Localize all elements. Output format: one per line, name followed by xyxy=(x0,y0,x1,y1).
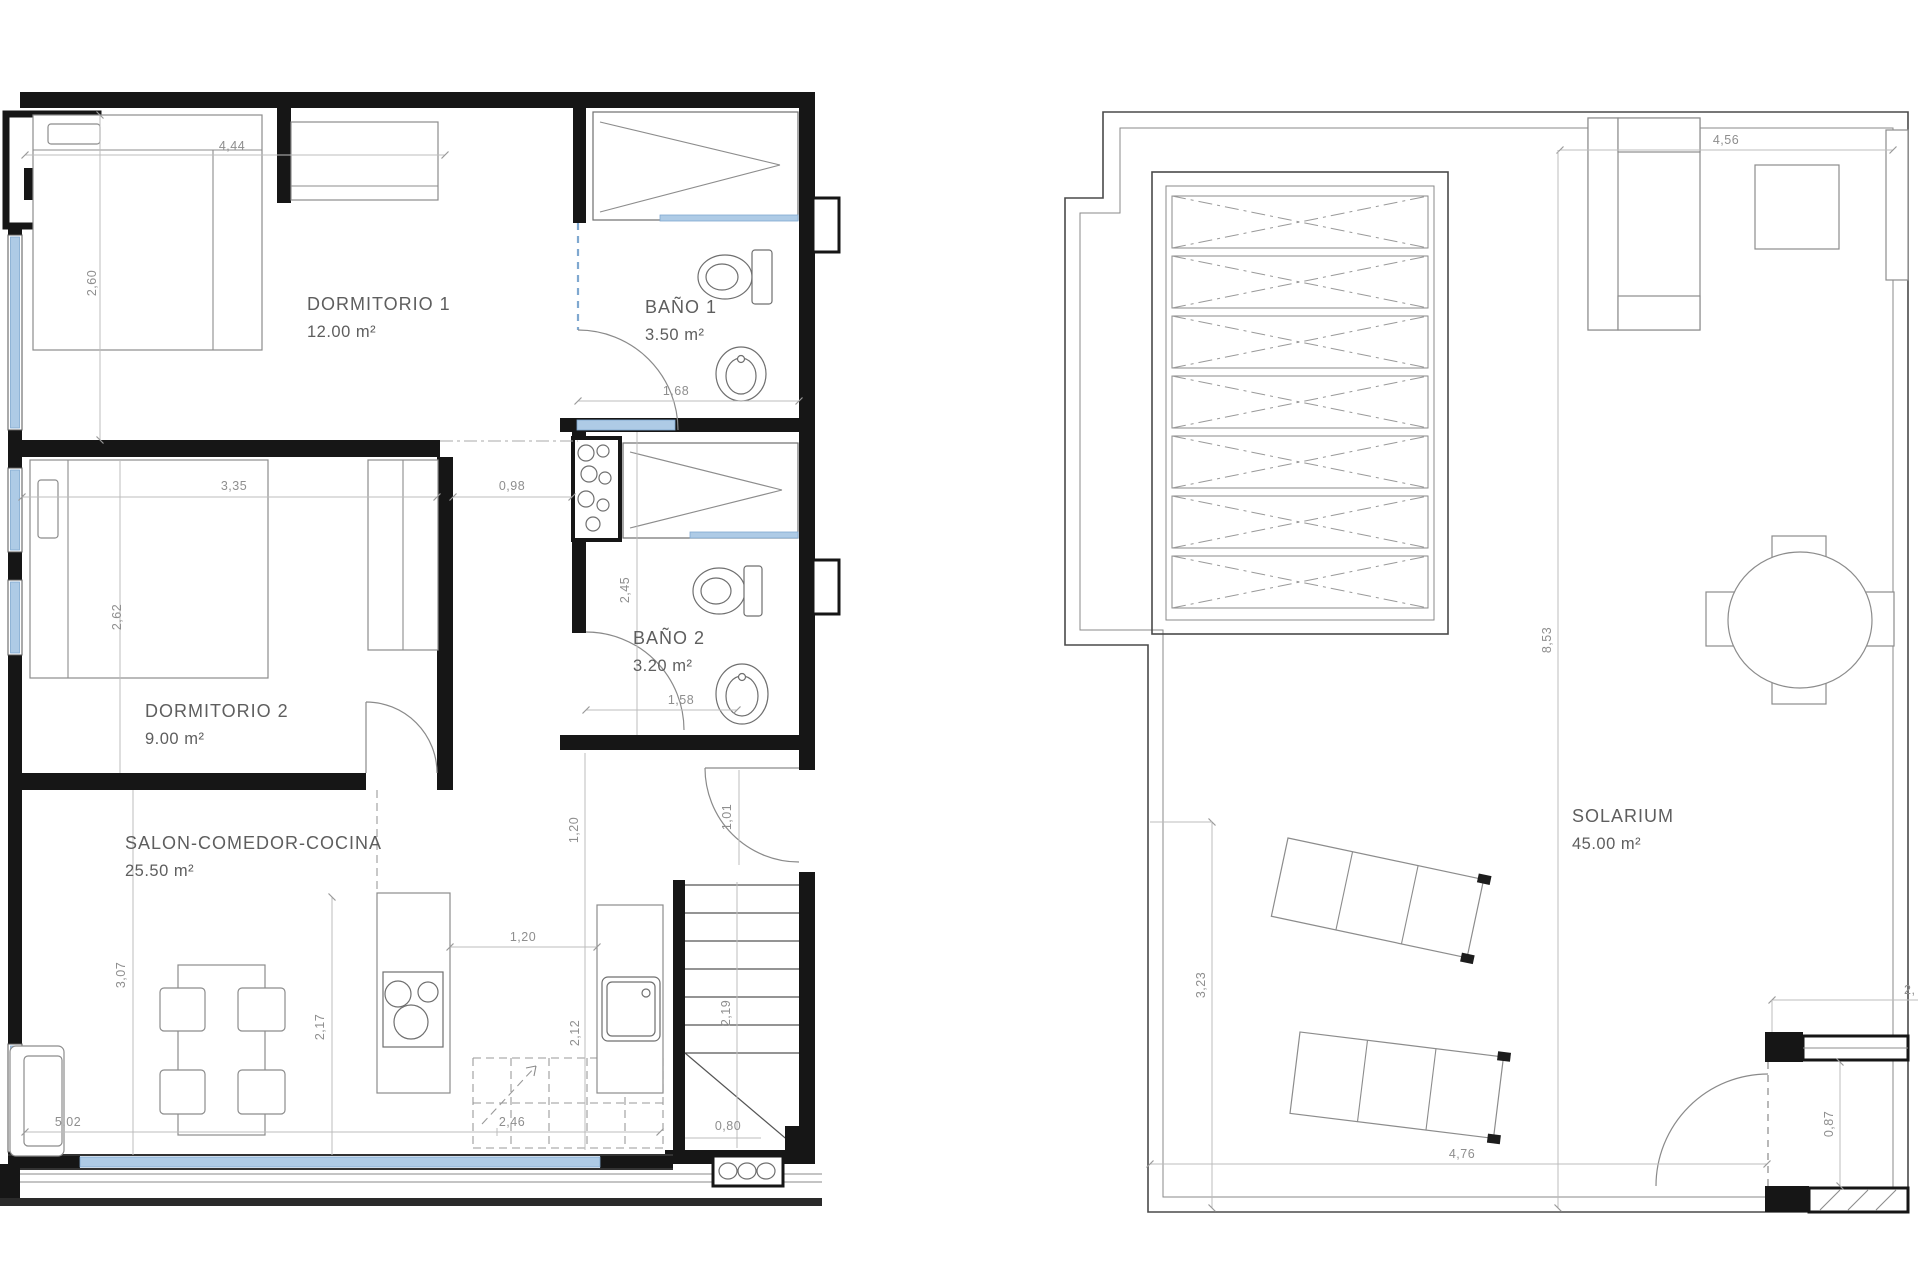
right-floor-plan: 4,56 8,53 3,23 4,76 0,87 2, SOLARIUM 45.… xyxy=(1065,112,1918,1212)
dim-bano1-width: 1,68 xyxy=(663,384,689,398)
dim-salon-height: 3,07 xyxy=(114,962,128,988)
kitchen-counters xyxy=(377,893,663,1093)
pergola-slats xyxy=(1172,196,1428,608)
dim-stair-run: 2,19 xyxy=(719,1000,733,1026)
dim-dorm1-height: 2,60 xyxy=(85,270,99,296)
dim-stair-width: 0,80 xyxy=(715,1119,741,1133)
pergola-structure xyxy=(1152,172,1448,634)
room-area-solarium: 45.00 m² xyxy=(1572,835,1641,853)
room-area-dormitorio-2: 9.00 m² xyxy=(145,730,204,748)
room-label-solarium: SOLARIUM xyxy=(1572,806,1674,826)
dim-solarium-top-width: 4,56 xyxy=(1713,133,1739,147)
bano1-sink xyxy=(716,347,766,401)
dim-entry-depth: 1,20 xyxy=(567,817,581,843)
dim-bano2-height: 2,45 xyxy=(618,577,632,603)
right-niche-1 xyxy=(813,198,839,252)
side-table xyxy=(1755,165,1839,249)
dining-table xyxy=(160,965,285,1135)
bano2-sink xyxy=(716,664,768,724)
dim-solarium-bottom-width: 4,76 xyxy=(1449,1147,1475,1161)
dim-entry-door: 1,01 xyxy=(720,804,734,830)
room-label-dormitorio-1: DORMITORIO 1 xyxy=(307,294,451,314)
sun-lounger-2 xyxy=(1289,1027,1511,1144)
dim-kitchen-width: 2,46 xyxy=(499,1115,525,1129)
dim-top-width: 4,44 xyxy=(219,139,245,153)
bano1-toilet xyxy=(698,250,772,304)
dim-kitchen-gap: 1,20 xyxy=(510,930,536,944)
dim-solarium-left-height: 3,23 xyxy=(1194,972,1208,998)
dim-dorm2-width: 3,35 xyxy=(221,479,247,493)
dim-roof-door-width: 0,87 xyxy=(1822,1111,1836,1137)
bano1-shower xyxy=(593,112,798,221)
right-niche-2 xyxy=(813,560,839,614)
dim-kitchen-run: 2,12 xyxy=(568,1020,582,1046)
dim-solarium-total-height: 8,53 xyxy=(1540,627,1554,653)
dim-bano2-width: 1,58 xyxy=(668,693,694,707)
bano2-shower xyxy=(623,443,798,538)
staircase xyxy=(685,885,813,1160)
room-area-dormitorio-1: 12.00 m² xyxy=(307,323,376,341)
room-label-bano-1: BAÑO 1 xyxy=(645,296,717,317)
room-label-salon: SALON-COMEDOR-COCINA xyxy=(125,833,382,853)
bano1-door-arc xyxy=(578,330,678,430)
left-floor-plan: 4,44 2,60 3,35 2,62 0,98 1,68 2,45 1,58 … xyxy=(0,92,839,1206)
floor-plan-canvas: 4,44 2,60 3,35 2,62 0,98 1,68 2,45 1,58 … xyxy=(0,0,1920,1280)
room-area-bano-2: 3.20 m² xyxy=(633,657,692,675)
roof-access-door xyxy=(1656,1032,1908,1212)
cooktop xyxy=(383,972,443,1047)
round-table-set xyxy=(1706,536,1894,704)
dorm2-door-arc xyxy=(366,702,437,773)
kitchen-sink xyxy=(602,977,660,1041)
vent-grille xyxy=(713,1156,783,1186)
dorm1-wardrobe xyxy=(291,122,438,200)
dim-edge-partial: 2, xyxy=(1904,983,1915,997)
dim-salon-mid: 2,17 xyxy=(313,1014,327,1040)
installation-shaft xyxy=(573,438,620,540)
dorm2-wardrobe xyxy=(368,460,438,650)
room-label-bano-2: BAÑO 2 xyxy=(633,627,705,648)
bano2-toilet xyxy=(693,566,762,616)
dim-salon-width: 5,02 xyxy=(55,1115,81,1129)
room-area-bano-1: 3.50 m² xyxy=(645,326,704,344)
dim-dorm2-height: 2,62 xyxy=(110,604,124,630)
armchair xyxy=(10,1046,64,1156)
sun-lounger-1 xyxy=(1270,833,1491,964)
room-label-dormitorio-2: DORMITORIO 2 xyxy=(145,701,289,721)
dim-hall-width: 0,98 xyxy=(499,479,525,493)
room-area-salon: 25.50 m² xyxy=(125,862,194,880)
floor-plan-drawing: 4,44 2,60 3,35 2,62 0,98 1,68 2,45 1,58 … xyxy=(0,0,1920,1280)
wall-bench xyxy=(1886,130,1908,280)
